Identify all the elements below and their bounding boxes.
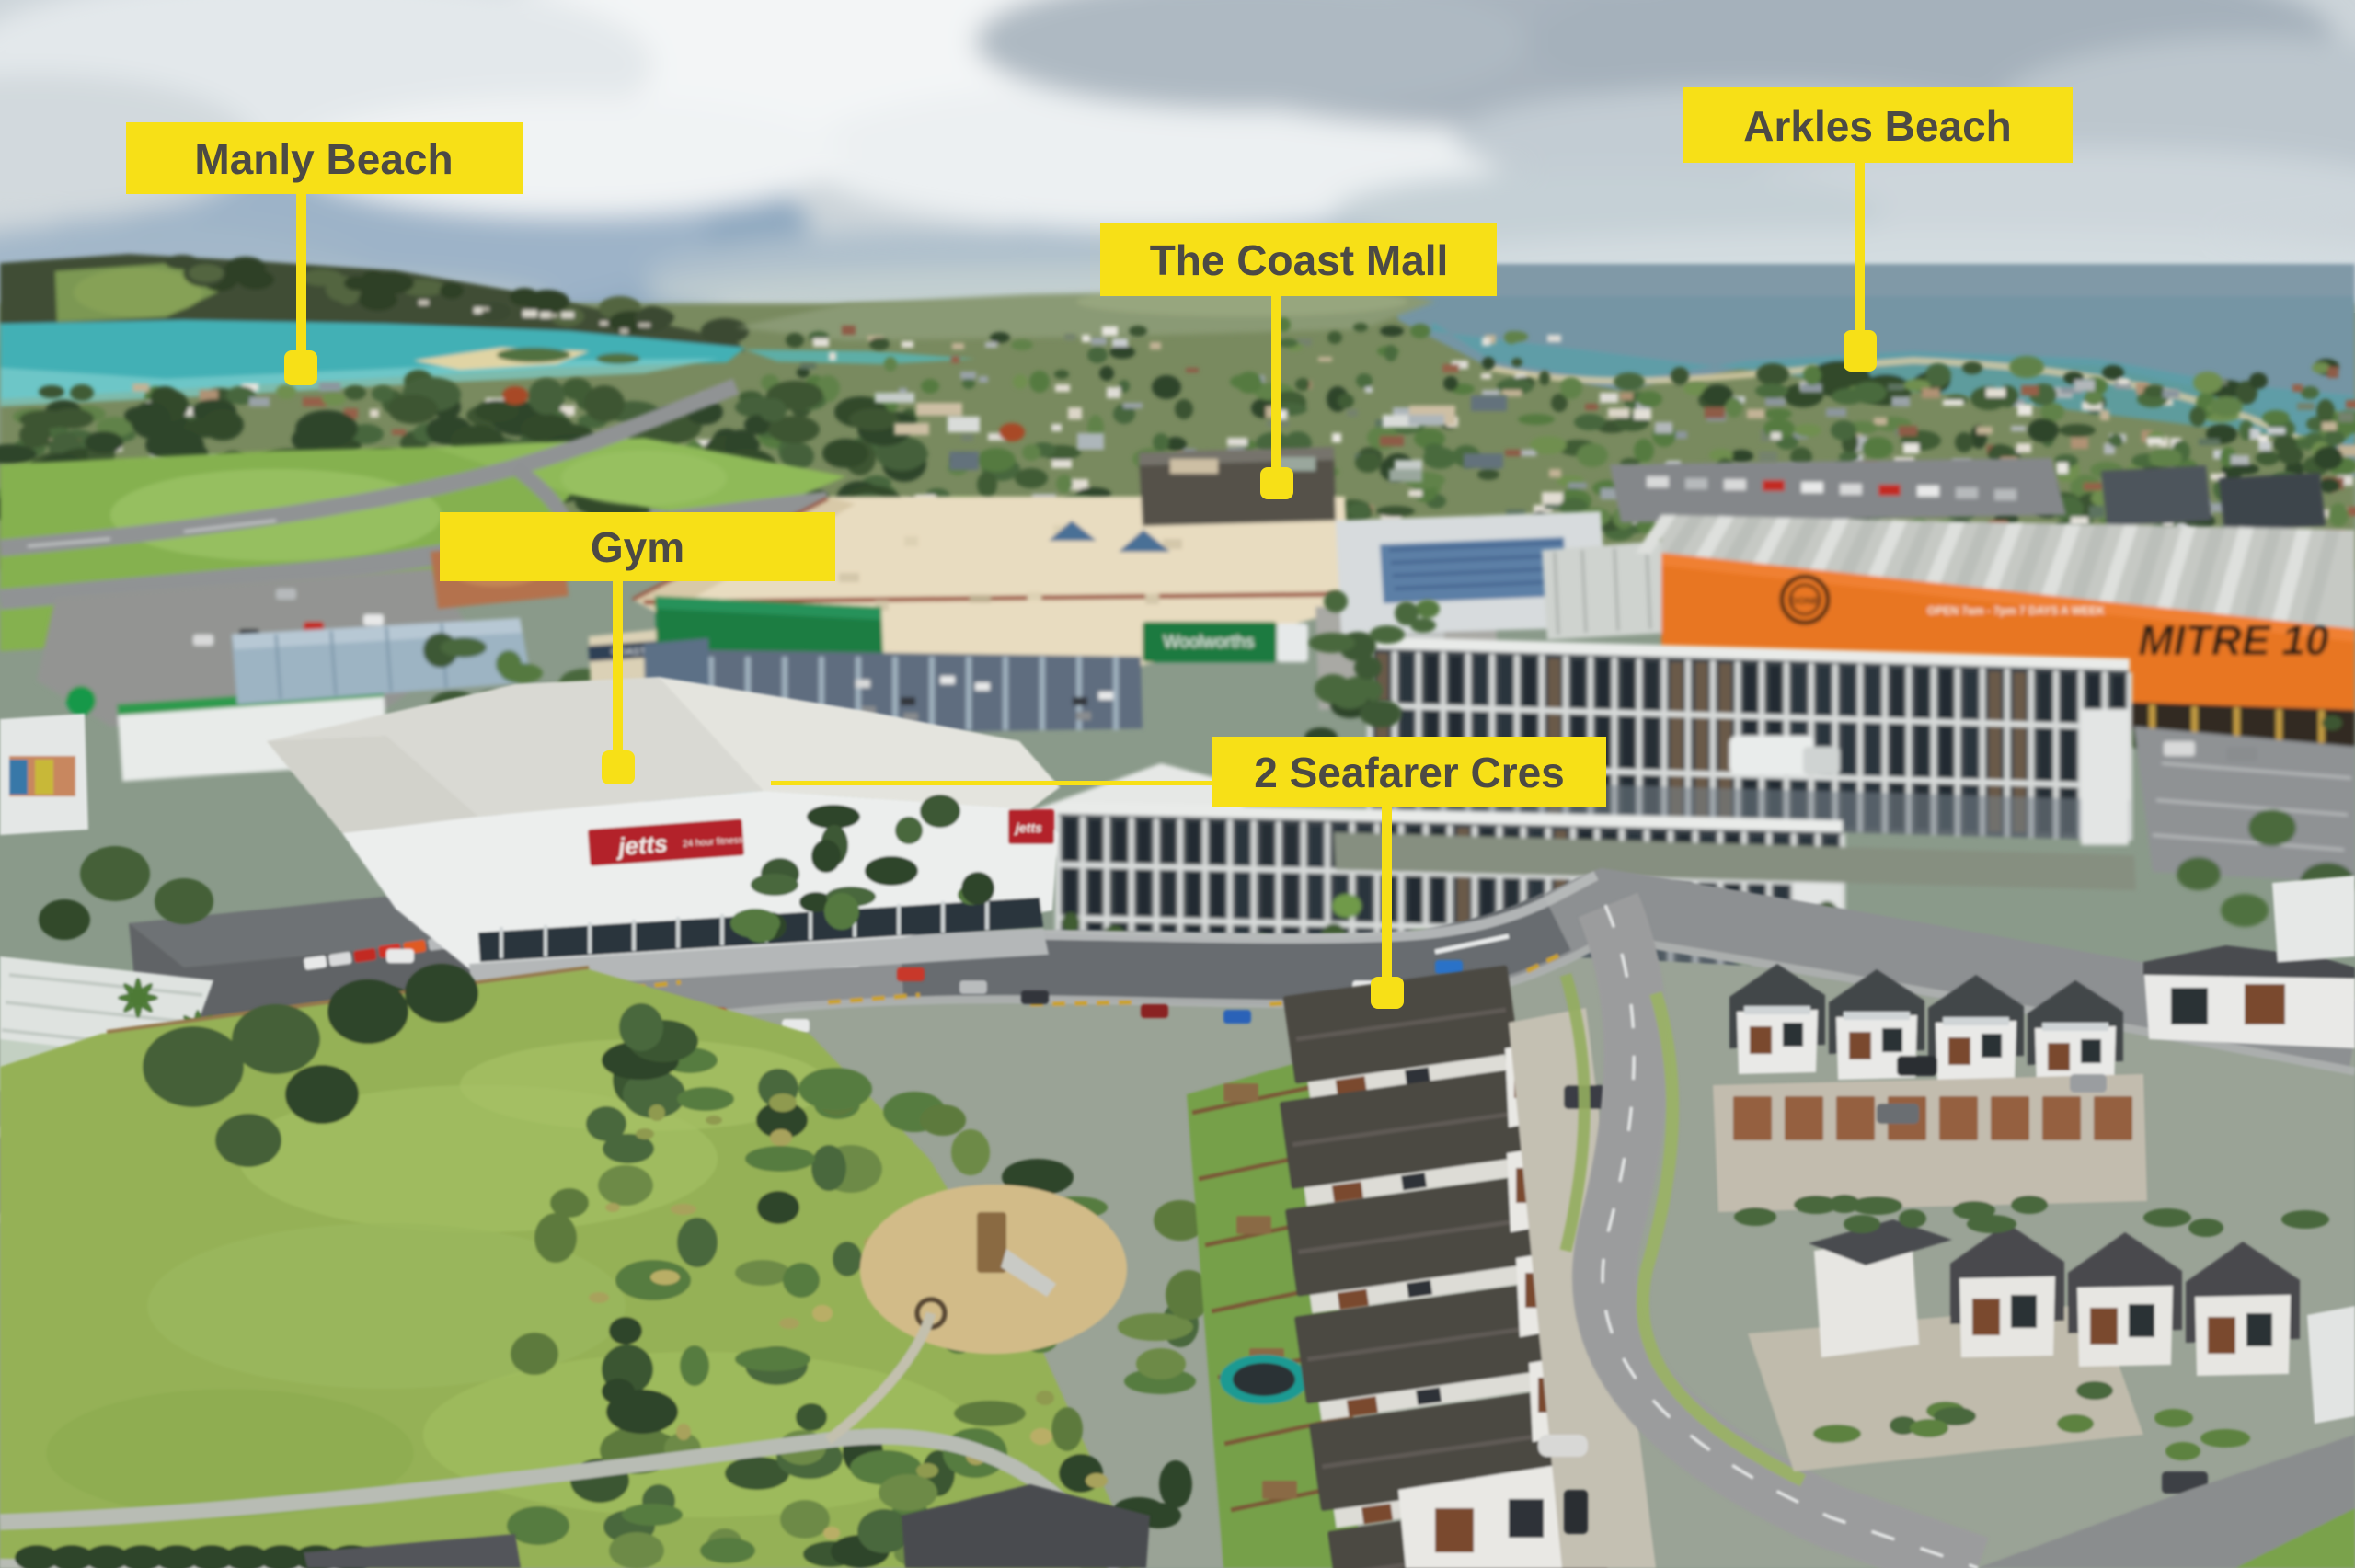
svg-text:Woolworths: Woolworths [1164, 633, 1255, 652]
svg-text:The Coast Mall: The Coast Mall [1150, 236, 1449, 284]
svg-text:Gym: Gym [591, 523, 684, 571]
svg-text:MITRE 10: MITRE 10 [2138, 616, 2328, 664]
svg-text:OPEN 7am - 7pm 7 DAYS A WEEK: OPEN 7am - 7pm 7 DAYS A WEEK [1927, 604, 2105, 617]
svg-text:Arkles Beach: Arkles Beach [1743, 102, 2012, 150]
svg-text:DONE: DONE [1790, 596, 1820, 607]
svg-text:jetts: jetts [615, 830, 668, 861]
svg-text:Manly Beach: Manly Beach [194, 135, 453, 183]
svg-text:2 Seafarer Cres: 2 Seafarer Cres [1254, 749, 1565, 796]
svg-text:jetts: jetts [1014, 820, 1042, 835]
